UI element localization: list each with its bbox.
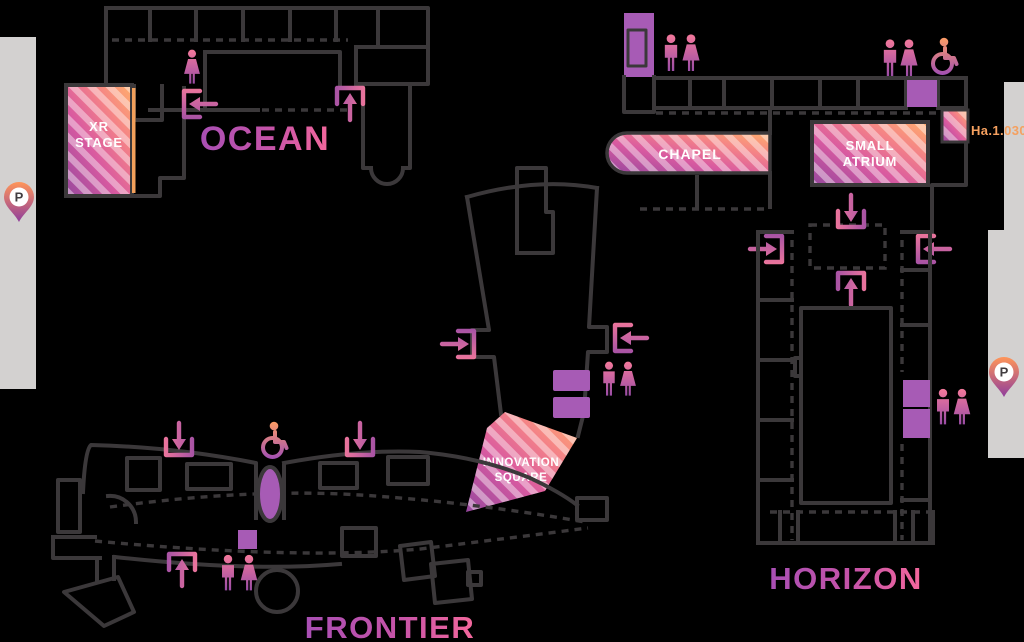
- area-chapel: CHAPEL: [607, 133, 770, 173]
- restroom-women-icon: [620, 362, 636, 396]
- round-tower: [256, 570, 298, 612]
- restroom-women-icon: [900, 39, 917, 76]
- entrance-in-left-icon: [615, 325, 647, 351]
- dashed-room: [810, 225, 885, 268]
- horizon-label: HORIZON: [769, 561, 922, 596]
- elevator-block: [903, 380, 930, 407]
- restroom-men-icon: [222, 555, 234, 591]
- building-ocean: XR STAGE OCEAN: [66, 8, 428, 196]
- frontier-label: FRONTIER: [305, 610, 475, 642]
- restroom-men-icon: [884, 39, 896, 76]
- restroom-women-icon: [954, 389, 971, 425]
- entrance-in-right-icon: [750, 236, 782, 262]
- entrance-in-right-icon: [442, 331, 474, 357]
- restroom-men-icon: [665, 34, 677, 71]
- small-atrium-label-line2: ATRIUM: [843, 154, 897, 169]
- area-small-atrium: SMALL ATRIUM: [812, 122, 928, 185]
- area-xr-stage: XR STAGE: [66, 85, 136, 196]
- entrance-up-icon: [838, 273, 864, 305]
- restroom-men-icon: [603, 362, 614, 396]
- entrance-in-left-icon: [918, 236, 950, 262]
- elevator-block: [553, 397, 590, 418]
- elevator-block: [907, 80, 937, 107]
- road-right-lower: [988, 230, 1024, 458]
- entrance-up-icon: [169, 554, 195, 586]
- room-number: Ha.1.030: [971, 123, 1024, 138]
- entrance-up-icon: [337, 88, 363, 120]
- building-tower: INNOVATION SQUARE: [442, 168, 647, 520]
- chapel-label: CHAPEL: [658, 146, 722, 162]
- wheelchair-access-icon: [263, 422, 287, 457]
- wheelchair-access-icon: [933, 38, 957, 73]
- roads: [0, 37, 1024, 458]
- courtyard: [801, 308, 891, 503]
- xr-stage-accent-line: [132, 88, 136, 193]
- elevator-oval: [258, 467, 282, 521]
- xr-stage-label-line2: STAGE: [75, 135, 123, 150]
- entrance-down-icon: [347, 423, 373, 455]
- small-atrium-label-line1: SMALL: [846, 138, 895, 153]
- venue-map-canvas: XR STAGE OCEAN INNOVATION SQUARE: [0, 0, 1024, 642]
- ocean-label: OCEAN: [200, 120, 330, 158]
- xr-stage-label-line1: XR: [89, 119, 109, 134]
- elevator-block: [903, 409, 930, 438]
- venue-map: XR STAGE OCEAN INNOVATION SQUARE: [0, 0, 1024, 642]
- elevator-block: [553, 370, 590, 391]
- restroom-women-icon: [184, 50, 200, 84]
- entrance-in-left-icon: [184, 91, 216, 117]
- restroom-men-icon: [937, 389, 949, 425]
- road-right-upper: [1004, 82, 1024, 232]
- restroom-women-icon: [682, 34, 699, 71]
- apse-arch: [371, 168, 403, 184]
- parking-pin-letter: P: [1000, 365, 1009, 380]
- entrance-down-icon: [838, 195, 864, 227]
- parking-pin-letter: P: [15, 190, 24, 205]
- building-horizon: CHAPEL SMALL ATRIUM Ha.1.030: [607, 13, 1024, 596]
- elevator-block: [238, 530, 257, 549]
